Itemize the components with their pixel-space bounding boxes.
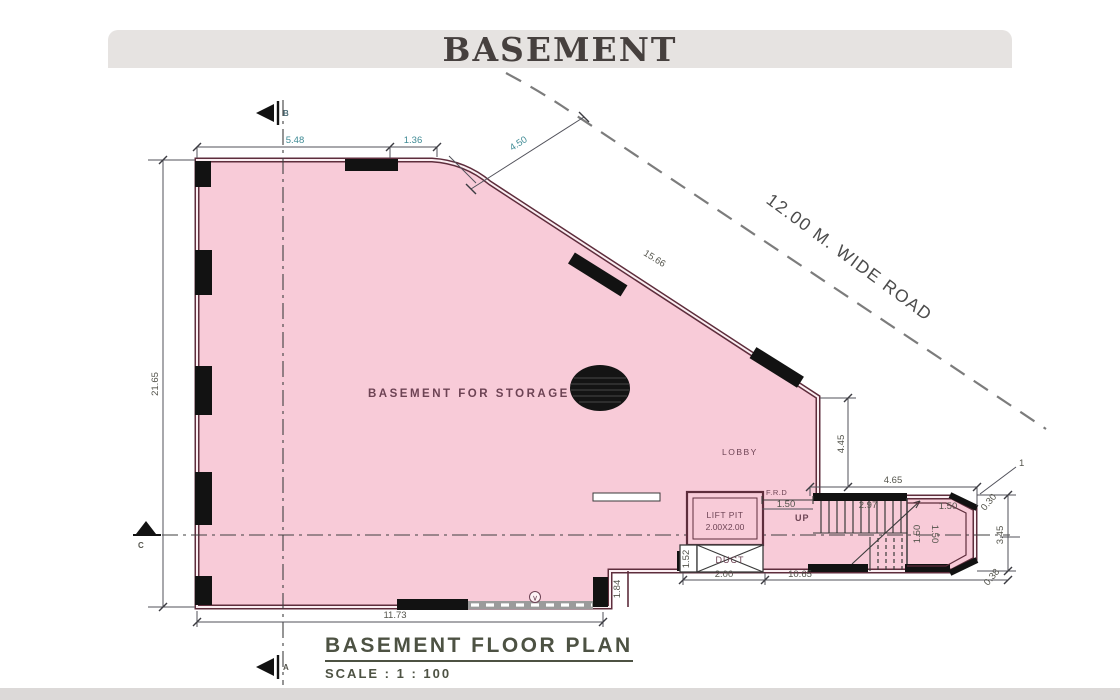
dim-bottom-width: 11.73 [383,610,406,621]
room-label: BASEMENT FOR STORAGE [368,388,570,400]
dim-stair-run: 2.97 [859,500,878,511]
section-marker-bottom-label: A [283,663,289,672]
dim-right-side: 3.45 0.30 0.38 1 [977,458,1024,588]
lift-pit-label-1: LIFT PIT [707,510,744,520]
lift-pit-label-2: 2.00X2.00 [706,522,745,532]
plan-scale: SCALE : 1 : 100 [325,666,633,681]
dim-door-width: 1.50 [777,499,796,510]
dim-duct-side: 1.52 [681,550,692,569]
dim-right-drop-label: 4.45 [836,435,847,454]
section-marker-top: B [256,101,289,125]
storage-ellipse [570,365,630,411]
up-label: UP [795,513,810,523]
column [195,576,212,605]
section-marker-bottom: A [256,655,289,679]
dim-landing-width: 1.50 [939,501,958,512]
floor-plan-svg: 12.00 M. WIDE ROAD [0,0,1120,700]
column [195,161,211,187]
plan-title: BASEMENT FLOOR PLAN [325,634,633,662]
dim-diagonal: 15.66 [641,248,667,270]
slot-opening [593,493,660,501]
dim-road-offset-label: 4.50 [508,134,530,153]
dim-corner-bottom: 0.38 [982,567,1002,588]
lobby-label: LOBBY [722,447,758,457]
column [593,577,608,607]
dim-bottom: 11.73 [193,610,607,627]
column [195,366,212,415]
column [397,599,468,610]
dim-corridor-width: 10.65 [788,569,812,580]
section-marker-left: C [133,521,161,550]
lift-pit: LIFT PIT 2.00X2.00 [687,492,763,545]
dim-top-left: 5.48 [286,135,305,146]
dim-step-height: 1.84 [612,580,623,599]
bottom-strip [0,688,1120,700]
dim-duct-width: 2.00 [715,569,734,580]
page: BASEMENT 12.00 M. WIDE ROAD [0,0,1120,700]
section-marker-left-label: C [138,541,144,550]
dim-left-height: 21.65 [150,372,161,396]
step-notch: 1.84 [612,571,628,607]
dim-top-right: 1.36 [404,135,423,146]
grid-marker-label: 1 [1019,458,1024,469]
dim-flight-a: 1.50 [912,525,923,544]
section-marker-top-label: B [283,109,289,118]
dim-flight-b: 1.50 [929,525,940,544]
dim-left: 21.65 [148,156,195,611]
dim-right-height: 3.45 [995,526,1006,545]
plan-caption: BASEMENT FLOOR PLAN SCALE : 1 : 100 [325,634,633,681]
vent-symbol: ∨ [532,594,538,603]
column [345,159,398,171]
frd-label: F.R.D [766,488,787,497]
dim-right-drop: 4.45 [820,394,856,491]
dim-stair-top-label: 4.65 [884,475,903,486]
duct: 1.52 DUCT [680,545,763,572]
column [195,250,212,295]
dim-top: 5.48 1.36 [193,135,441,158]
duct-label: DUCT [716,555,745,565]
column [195,472,212,525]
